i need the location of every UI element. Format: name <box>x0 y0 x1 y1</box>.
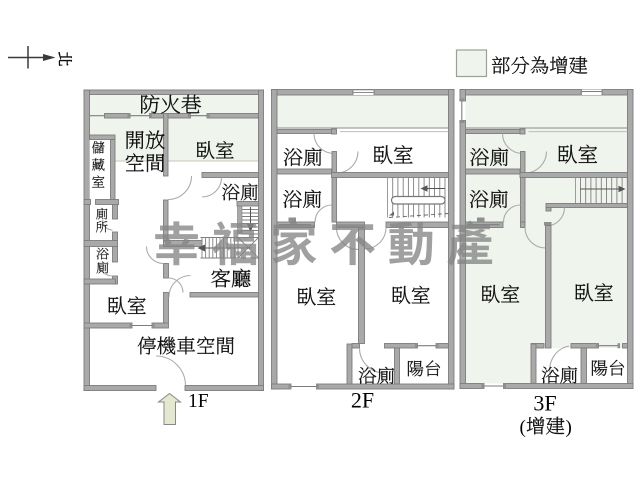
svg-text:2F: 2F <box>351 388 374 413</box>
svg-text:(: ( <box>520 417 526 438</box>
svg-text:1F: 1F <box>188 391 209 412</box>
svg-text:3F: 3F <box>533 391 556 416</box>
svg-text:): ) <box>566 417 572 438</box>
